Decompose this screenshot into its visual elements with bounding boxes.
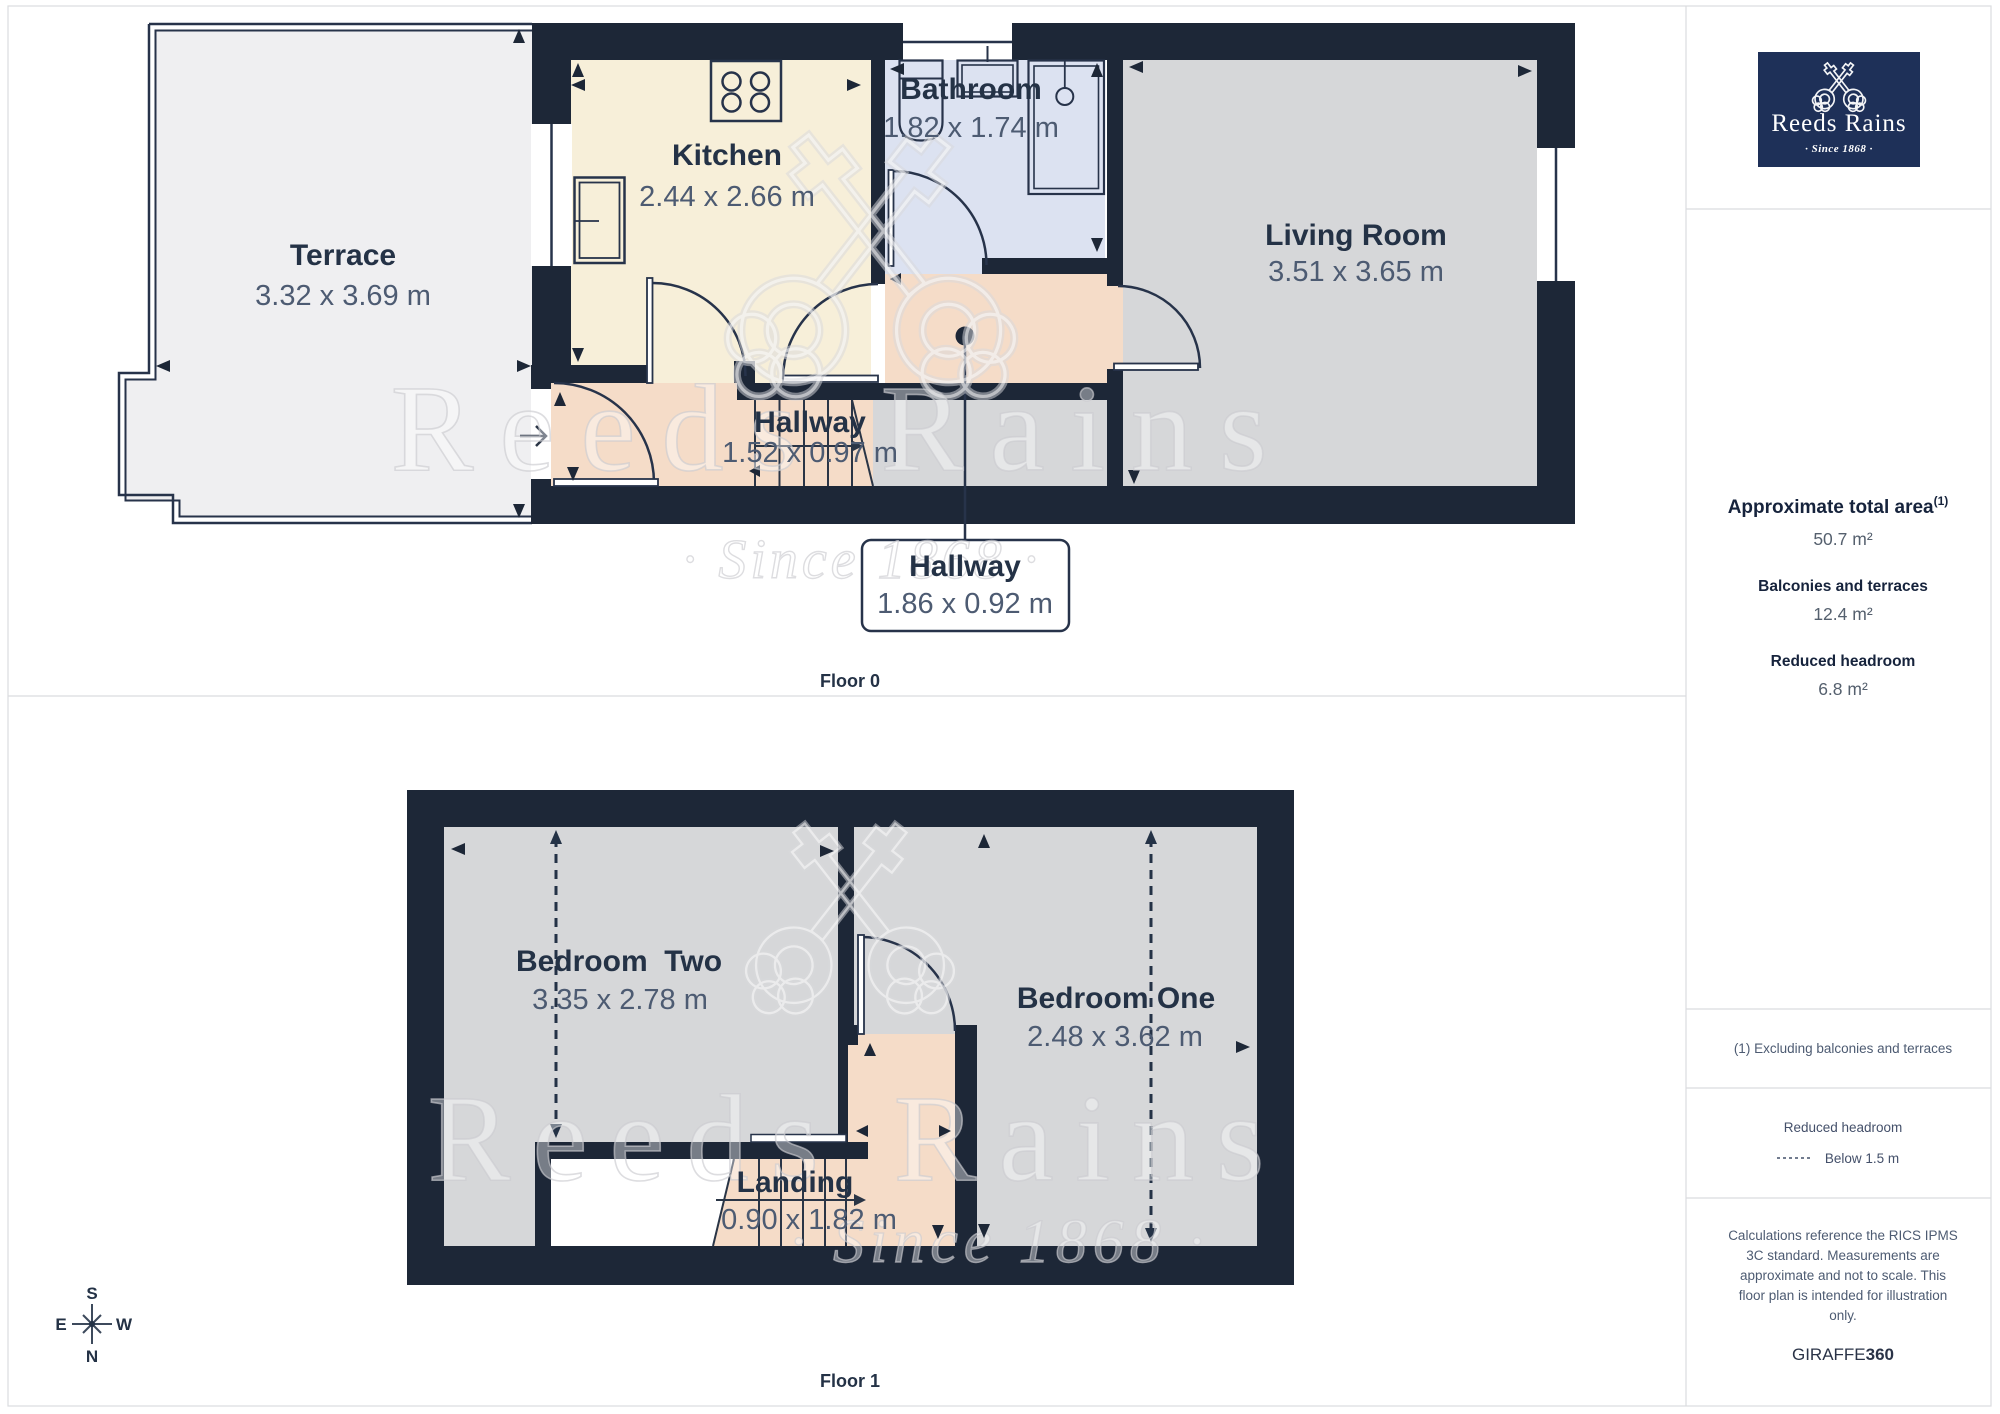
svg-text:Floor 1: Floor 1 [820,1371,880,1391]
svg-text:6.8 m²: 6.8 m² [1818,679,1868,699]
svg-text:only.: only. [1829,1308,1857,1323]
svg-text:E: E [55,1315,66,1334]
svg-text:· Since 1868 ·: · Since 1868 · [1805,143,1873,155]
svg-text:Reduced headroom: Reduced headroom [1771,653,1916,670]
svg-text:1.82 x 1.74 m: 1.82 x 1.74 m [883,112,1059,144]
svg-text:S: S [86,1284,97,1303]
svg-text:approximate and not to scale.: approximate and not to scale. This [1740,1268,1946,1283]
svg-text:3C standard. Measurements are: 3C standard. Measurements are [1746,1248,1940,1263]
svg-text:Balconies and terraces: Balconies and terraces [1758,578,1928,595]
svg-text:Reduced headroom: Reduced headroom [1784,1120,1903,1135]
svg-text:Below 1.5 m: Below 1.5 m [1825,1151,1899,1166]
svg-text:50.7 m²: 50.7 m² [1813,529,1872,549]
svg-text:0.90 x 1.82 m: 0.90 x 1.82 m [721,1204,897,1236]
svg-text:Reeds Rains: Reeds Rains [1771,110,1906,137]
svg-text:Bedroom One: Bedroom One [1017,982,1215,1015]
svg-text:Living Room: Living Room [1265,219,1447,252]
svg-text:Terrace: Terrace [290,239,396,272]
svg-text:2.44 x 2.66 m: 2.44 x 2.66 m [639,181,815,213]
svg-text:1.52 x 0.97 m: 1.52 x 0.97 m [722,437,898,469]
svg-text:GIRAFFE360: GIRAFFE360 [1792,1345,1894,1364]
svg-text:3.32 x 3.69 m: 3.32 x 3.69 m [255,280,431,312]
svg-text:floor plan is intended for ill: floor plan is intended for illustration [1739,1288,1948,1303]
svg-text:Bedroom Two: Bedroom Two [516,945,722,978]
svg-text:(1) Excluding balconies and te: (1) Excluding balconies and terraces [1734,1041,1953,1056]
svg-text:Bathroom: Bathroom [900,73,1042,106]
svg-text:1.86 x 0.92 m: 1.86 x 0.92 m [877,588,1053,620]
svg-text:Reeds Rains: Reeds Rains [428,1070,1287,1207]
svg-text:Kitchen: Kitchen [672,139,782,172]
svg-text:2.48 x 3.62 m: 2.48 x 3.62 m [1027,1021,1203,1053]
svg-text:N: N [86,1347,98,1366]
svg-text:Approximate total area(1): Approximate total area(1) [1728,494,1949,518]
svg-text:3.35 x 2.78 m: 3.35 x 2.78 m [532,984,708,1016]
svg-text:Calculations reference the RIC: Calculations reference the RICS IPMS [1728,1228,1958,1243]
svg-text:Hallway: Hallway [754,406,866,439]
svg-text:12.4 m²: 12.4 m² [1813,604,1872,624]
svg-text:W: W [116,1315,133,1334]
svg-text:3.51 x 3.65 m: 3.51 x 3.65 m [1268,256,1444,288]
svg-text:Hallway: Hallway [909,550,1021,583]
svg-text:Floor 0: Floor 0 [820,671,880,691]
svg-text:Landing: Landing [737,1166,854,1199]
